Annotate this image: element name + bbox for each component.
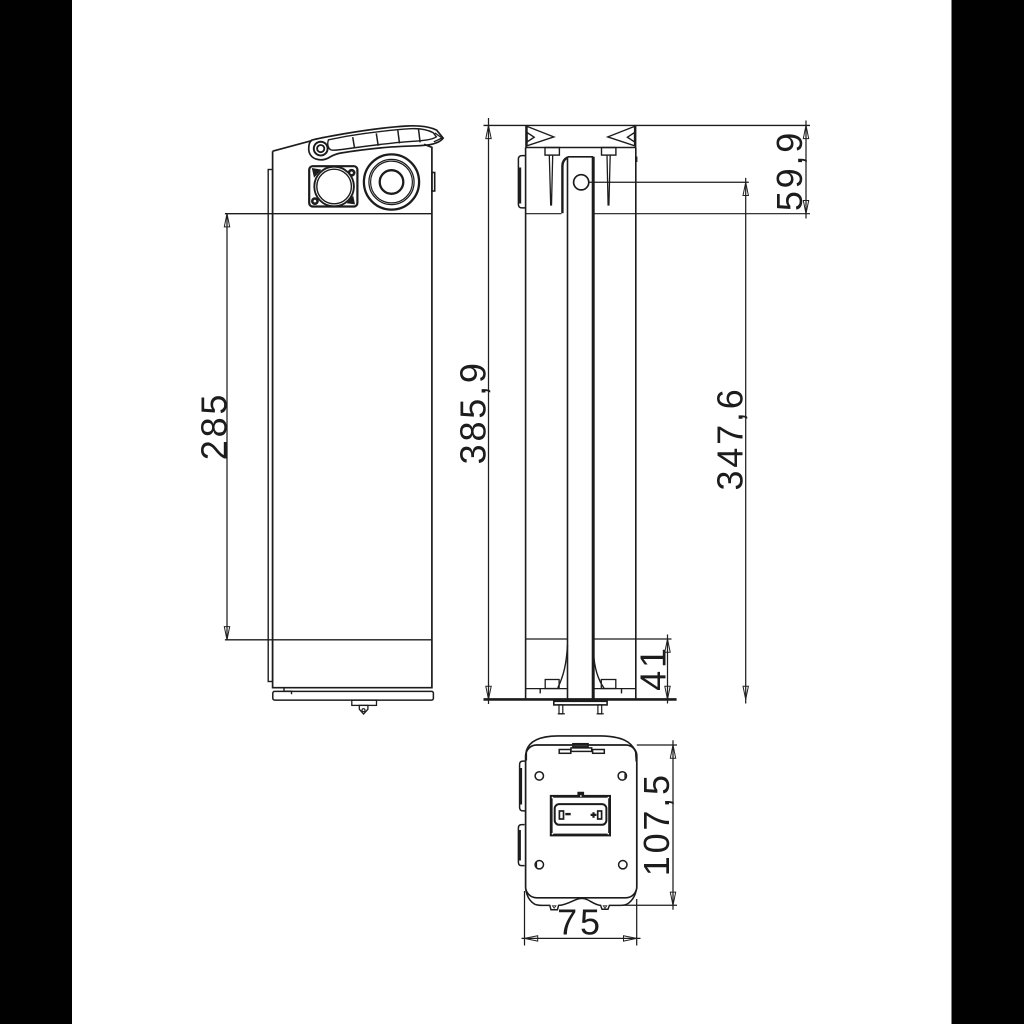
svg-text:385,9: 385,9 (453, 360, 494, 464)
svg-text:75: 75 (557, 902, 603, 943)
svg-text:59,9: 59,9 (769, 130, 810, 211)
svg-text:347,6: 347,6 (710, 386, 751, 490)
svg-text:285: 285 (194, 392, 235, 460)
svg-text:107,5: 107,5 (636, 772, 677, 876)
svg-text:41: 41 (633, 645, 674, 691)
